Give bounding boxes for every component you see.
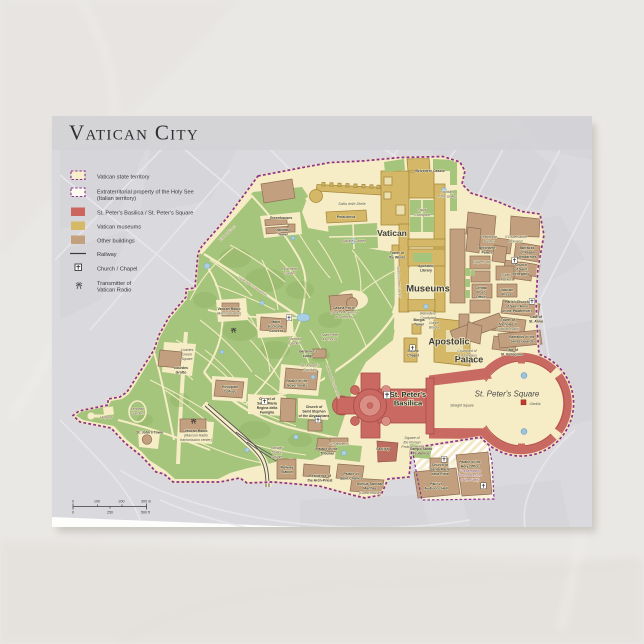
svg-text:St. Peter's Basilica / St. Pet: St. Peter's Basilica / St. Peter's Squar… bbox=[97, 211, 193, 217]
svg-text:Tower of: Tower of bbox=[501, 318, 516, 322]
svg-text:Audience Hall: Audience Hall bbox=[424, 487, 447, 491]
svg-text:Salita delle Zitelle: Salita delle Zitelle bbox=[338, 202, 365, 206]
svg-text:Station: Station bbox=[281, 470, 293, 474]
svg-text:Palace of the: Palace of the bbox=[316, 447, 338, 451]
svg-text:Nicholas V: Nicholas V bbox=[499, 323, 518, 327]
svg-text:Famiglia: Famiglia bbox=[260, 411, 274, 415]
svg-text:Vatican City: Vatican City bbox=[69, 121, 199, 145]
svg-text:Chapel: Chapel bbox=[407, 354, 419, 358]
svg-text:St. John's Tower: St. John's Tower bbox=[136, 431, 164, 435]
svg-text:100: 100 bbox=[94, 500, 100, 504]
svg-text:Belvedere: Belvedere bbox=[420, 312, 436, 316]
svg-text:Courtyard of: Courtyard of bbox=[457, 349, 477, 353]
svg-text:Regina della: Regina della bbox=[257, 406, 278, 410]
svg-text:Fountain: Fountain bbox=[440, 190, 454, 194]
svg-text:Saint Stephen: Saint Stephen bbox=[302, 410, 325, 414]
svg-text:Dispensary: Dispensary bbox=[473, 260, 491, 264]
svg-text:(Vatican Bank): (Vatican Bank) bbox=[497, 327, 520, 331]
svg-text:Church / Chapel: Church / Chapel bbox=[97, 267, 137, 273]
svg-text:the Roman: the Roman bbox=[403, 441, 420, 445]
svg-text:Vatican Radio: Vatican Radio bbox=[185, 429, 208, 433]
svg-text:Other buildings: Other buildings bbox=[97, 239, 135, 245]
svg-text:St. Pellegrino: St. Pellegrino bbox=[501, 353, 523, 357]
svg-text:St. Joseph's: St. Joseph's bbox=[301, 364, 320, 368]
svg-text:St. Anna: St. Anna bbox=[529, 320, 543, 324]
svg-text:St. Peter's Square: St. Peter's Square bbox=[475, 390, 540, 399]
svg-text:250: 250 bbox=[107, 511, 113, 515]
svg-text:Apostolic: Apostolic bbox=[428, 337, 469, 347]
svg-text:Station: Station bbox=[272, 451, 283, 455]
svg-text:Transmitter of: Transmitter of bbox=[97, 281, 132, 287]
svg-text:Basilica: Basilica bbox=[394, 399, 423, 408]
svg-text:'L'Osservatore: 'L'Osservatore bbox=[505, 235, 527, 239]
svg-text:Railway: Railway bbox=[97, 252, 117, 258]
svg-text:Telephone: Telephone bbox=[481, 235, 497, 239]
svg-text:Saint Peter: Saint Peter bbox=[321, 333, 339, 337]
svg-text:Gate of: Gate of bbox=[530, 315, 543, 319]
svg-text:Palace of the: Palace of the bbox=[286, 379, 308, 383]
svg-text:Parish Church: Parish Church bbox=[505, 300, 529, 304]
svg-text:Sacristy: Sacristy bbox=[376, 447, 390, 451]
svg-text:Vatican Radio: Vatican Radio bbox=[97, 288, 131, 294]
svg-text:of Papal: of Papal bbox=[520, 251, 534, 255]
svg-text:Green: Green bbox=[182, 353, 192, 357]
svg-text:Vatican: Vatican bbox=[501, 288, 513, 292]
svg-text:Center: Center bbox=[484, 240, 495, 244]
svg-text:garden: garden bbox=[290, 342, 301, 346]
svg-text:Romano': Romano' bbox=[509, 240, 523, 244]
svg-text:Ecclesiae: Ecclesiae bbox=[268, 325, 284, 329]
svg-text:Office: Office bbox=[476, 295, 486, 299]
svg-text:Marthae: Marthae bbox=[363, 487, 376, 491]
svg-text:Vatican museums: Vatican museums bbox=[97, 225, 141, 231]
svg-text:of Sciences): of Sciences) bbox=[334, 315, 353, 319]
svg-text:300 m: 300 m bbox=[141, 500, 151, 504]
svg-text:transmission center): transmission center) bbox=[180, 438, 212, 442]
svg-text:Gate of: Gate of bbox=[506, 348, 519, 352]
svg-text:Belvedere: Belvedere bbox=[479, 246, 496, 250]
svg-text:Church of: Church of bbox=[432, 463, 449, 467]
svg-text:Press: Press bbox=[502, 293, 512, 297]
svg-text:Tower of: Tower of bbox=[390, 251, 405, 255]
svg-text:of Saint Anne: of Saint Anne bbox=[506, 305, 528, 309]
svg-text:0: 0 bbox=[72, 511, 74, 515]
svg-text:Grotto: Grotto bbox=[176, 371, 187, 375]
svg-text:Holy Office: Holy Office bbox=[461, 465, 480, 469]
svg-text:Garden: Garden bbox=[284, 272, 296, 276]
svg-text:Belvedere Casino: Belvedere Casino bbox=[415, 169, 444, 173]
svg-text:Heliport: Heliport bbox=[100, 416, 113, 420]
svg-text:Vatican: Vatican bbox=[377, 228, 407, 238]
svg-text:Gallinaro: Gallinaro bbox=[275, 228, 290, 232]
svg-text:Gardener's: Gardener's bbox=[299, 350, 317, 354]
svg-text:Palace of the: Palace of the bbox=[459, 460, 481, 464]
svg-text:of Saint: of Saint bbox=[515, 268, 529, 272]
svg-text:della Pietà: della Pietà bbox=[431, 472, 448, 476]
svg-text:Teutonico: Teutonico bbox=[413, 452, 429, 456]
svg-text:Tower: Tower bbox=[278, 233, 289, 237]
svg-text:the Arch-Priest: the Arch-Priest bbox=[308, 479, 334, 483]
svg-text:Apostolic: Apostolic bbox=[418, 264, 434, 268]
svg-text:Santa Maria: Santa Maria bbox=[430, 468, 450, 472]
svg-text:(Italian territory): (Italian territory) bbox=[97, 196, 136, 202]
svg-text:200: 200 bbox=[119, 500, 125, 504]
svg-text:Barracks of the: Barracks of the bbox=[509, 335, 535, 339]
svg-text:St.Stephen's: St.Stephen's bbox=[329, 442, 349, 446]
svg-text:Super: Super bbox=[501, 273, 511, 277]
svg-text:Barracks: Barracks bbox=[520, 246, 535, 250]
svg-text:Chapel of: Chapel of bbox=[259, 397, 276, 401]
svg-text:Cortile: Cortile bbox=[429, 321, 439, 325]
svg-text:0: 0 bbox=[72, 500, 74, 504]
svg-text:the Winds: the Winds bbox=[389, 256, 406, 260]
svg-text:Governorate: Governorate bbox=[287, 384, 308, 388]
svg-text:for the Doctrine: for the Doctrine bbox=[458, 474, 482, 478]
svg-text:Post: Post bbox=[477, 291, 485, 295]
svg-text:Courtyard: Courtyard bbox=[414, 213, 430, 217]
svg-text:Square: Square bbox=[181, 357, 192, 361]
svg-text:Market: Market bbox=[501, 278, 512, 282]
svg-text:Vatican state territory: Vatican state territory bbox=[97, 175, 150, 181]
svg-text:(Guest house): (Guest house) bbox=[359, 491, 381, 495]
svg-text:Church of: Church of bbox=[306, 405, 323, 409]
svg-text:of the Faith): of the Faith) bbox=[461, 478, 480, 482]
svg-text:Tower: Tower bbox=[414, 323, 425, 327]
svg-text:Pinacoteca: Pinacoteca bbox=[337, 215, 356, 219]
svg-text:Leonean: Leonean bbox=[131, 407, 145, 411]
svg-text:of the Galley: of the Galley bbox=[437, 195, 457, 199]
svg-text:Mater: Mater bbox=[271, 320, 281, 324]
svg-text:Borgia: Borgia bbox=[413, 318, 424, 322]
svg-text:Gendarmes: Gendarmes bbox=[517, 255, 536, 259]
svg-text:Railway: Railway bbox=[280, 466, 293, 470]
svg-text:(Administration): (Administration) bbox=[217, 312, 242, 316]
svg-text:of the Abyssinians: of the Abyssinians bbox=[299, 414, 330, 418]
svg-text:Church: Church bbox=[515, 263, 527, 267]
svg-text:Convent: Convent bbox=[269, 329, 284, 333]
svg-text:Straight Square: Straight Square bbox=[450, 404, 474, 408]
svg-text:Central: Central bbox=[475, 286, 487, 290]
svg-text:Casina Pio IV: Casina Pio IV bbox=[333, 306, 356, 310]
svg-text:Palace of: Palace of bbox=[343, 472, 359, 476]
svg-text:Papal: Papal bbox=[418, 208, 427, 212]
svg-text:Garden: Garden bbox=[132, 412, 144, 416]
svg-text:(Seat of Academy: (Seat of Academy bbox=[330, 311, 358, 315]
svg-text:Borgia: Borgia bbox=[429, 326, 439, 330]
svg-text:Square of: Square of bbox=[404, 436, 420, 440]
svg-text:Ethiopian: Ethiopian bbox=[222, 385, 238, 389]
svg-text:Pellegrino: Pellegrino bbox=[513, 272, 530, 276]
svg-text:Library: Library bbox=[420, 269, 432, 273]
svg-text:Saint Charles: Saint Charles bbox=[340, 477, 362, 481]
svg-text:St. Damasus: St. Damasus bbox=[457, 354, 477, 358]
svg-text:Tribunal: Tribunal bbox=[320, 452, 334, 456]
svg-text:Paul VI: Paul VI bbox=[430, 482, 442, 486]
svg-text:Lourdes: Lourdes bbox=[181, 348, 194, 352]
svg-text:(Marconi Radio: (Marconi Radio bbox=[184, 434, 208, 438]
svg-text:Residence of: Residence of bbox=[309, 474, 332, 478]
svg-text:Square: Square bbox=[271, 455, 282, 459]
svg-text:Swiss Guards: Swiss Guards bbox=[510, 340, 533, 344]
svg-text:of the Palafrenieri: of the Palafrenieri bbox=[502, 309, 532, 313]
svg-text:Lourdes: Lourdes bbox=[174, 366, 188, 370]
svg-text:Museums: Museums bbox=[406, 284, 450, 295]
svg-text:(Congregation: (Congregation bbox=[459, 469, 481, 473]
svg-text:Railway: Railway bbox=[271, 446, 284, 450]
svg-text:College: College bbox=[224, 390, 237, 394]
svg-text:Boschetto: Boschetto bbox=[282, 267, 298, 271]
svg-text:Obelisk: Obelisk bbox=[530, 402, 541, 406]
svg-text:Vatican Radio: Vatican Radio bbox=[218, 307, 241, 311]
svg-text:Campo Santo: Campo Santo bbox=[410, 447, 433, 451]
svg-text:Square Garden: Square Garden bbox=[342, 239, 366, 243]
svg-text:Memorial: Memorial bbox=[323, 338, 338, 342]
svg-text:Lodge: Lodge bbox=[303, 354, 314, 358]
svg-text:Extraterritorial property of t: Extraterritorial property of the Holy Se… bbox=[97, 190, 194, 196]
svg-text:Fountain: Fountain bbox=[303, 368, 317, 372]
svg-text:500 ft: 500 ft bbox=[141, 511, 150, 515]
svg-text:Palace: Palace bbox=[481, 251, 492, 255]
svg-text:Greenhouses: Greenhouses bbox=[270, 216, 292, 220]
svg-text:Fountain: Fountain bbox=[288, 337, 302, 341]
svg-text:Domus Sanctae: Domus Sanctae bbox=[357, 482, 383, 486]
